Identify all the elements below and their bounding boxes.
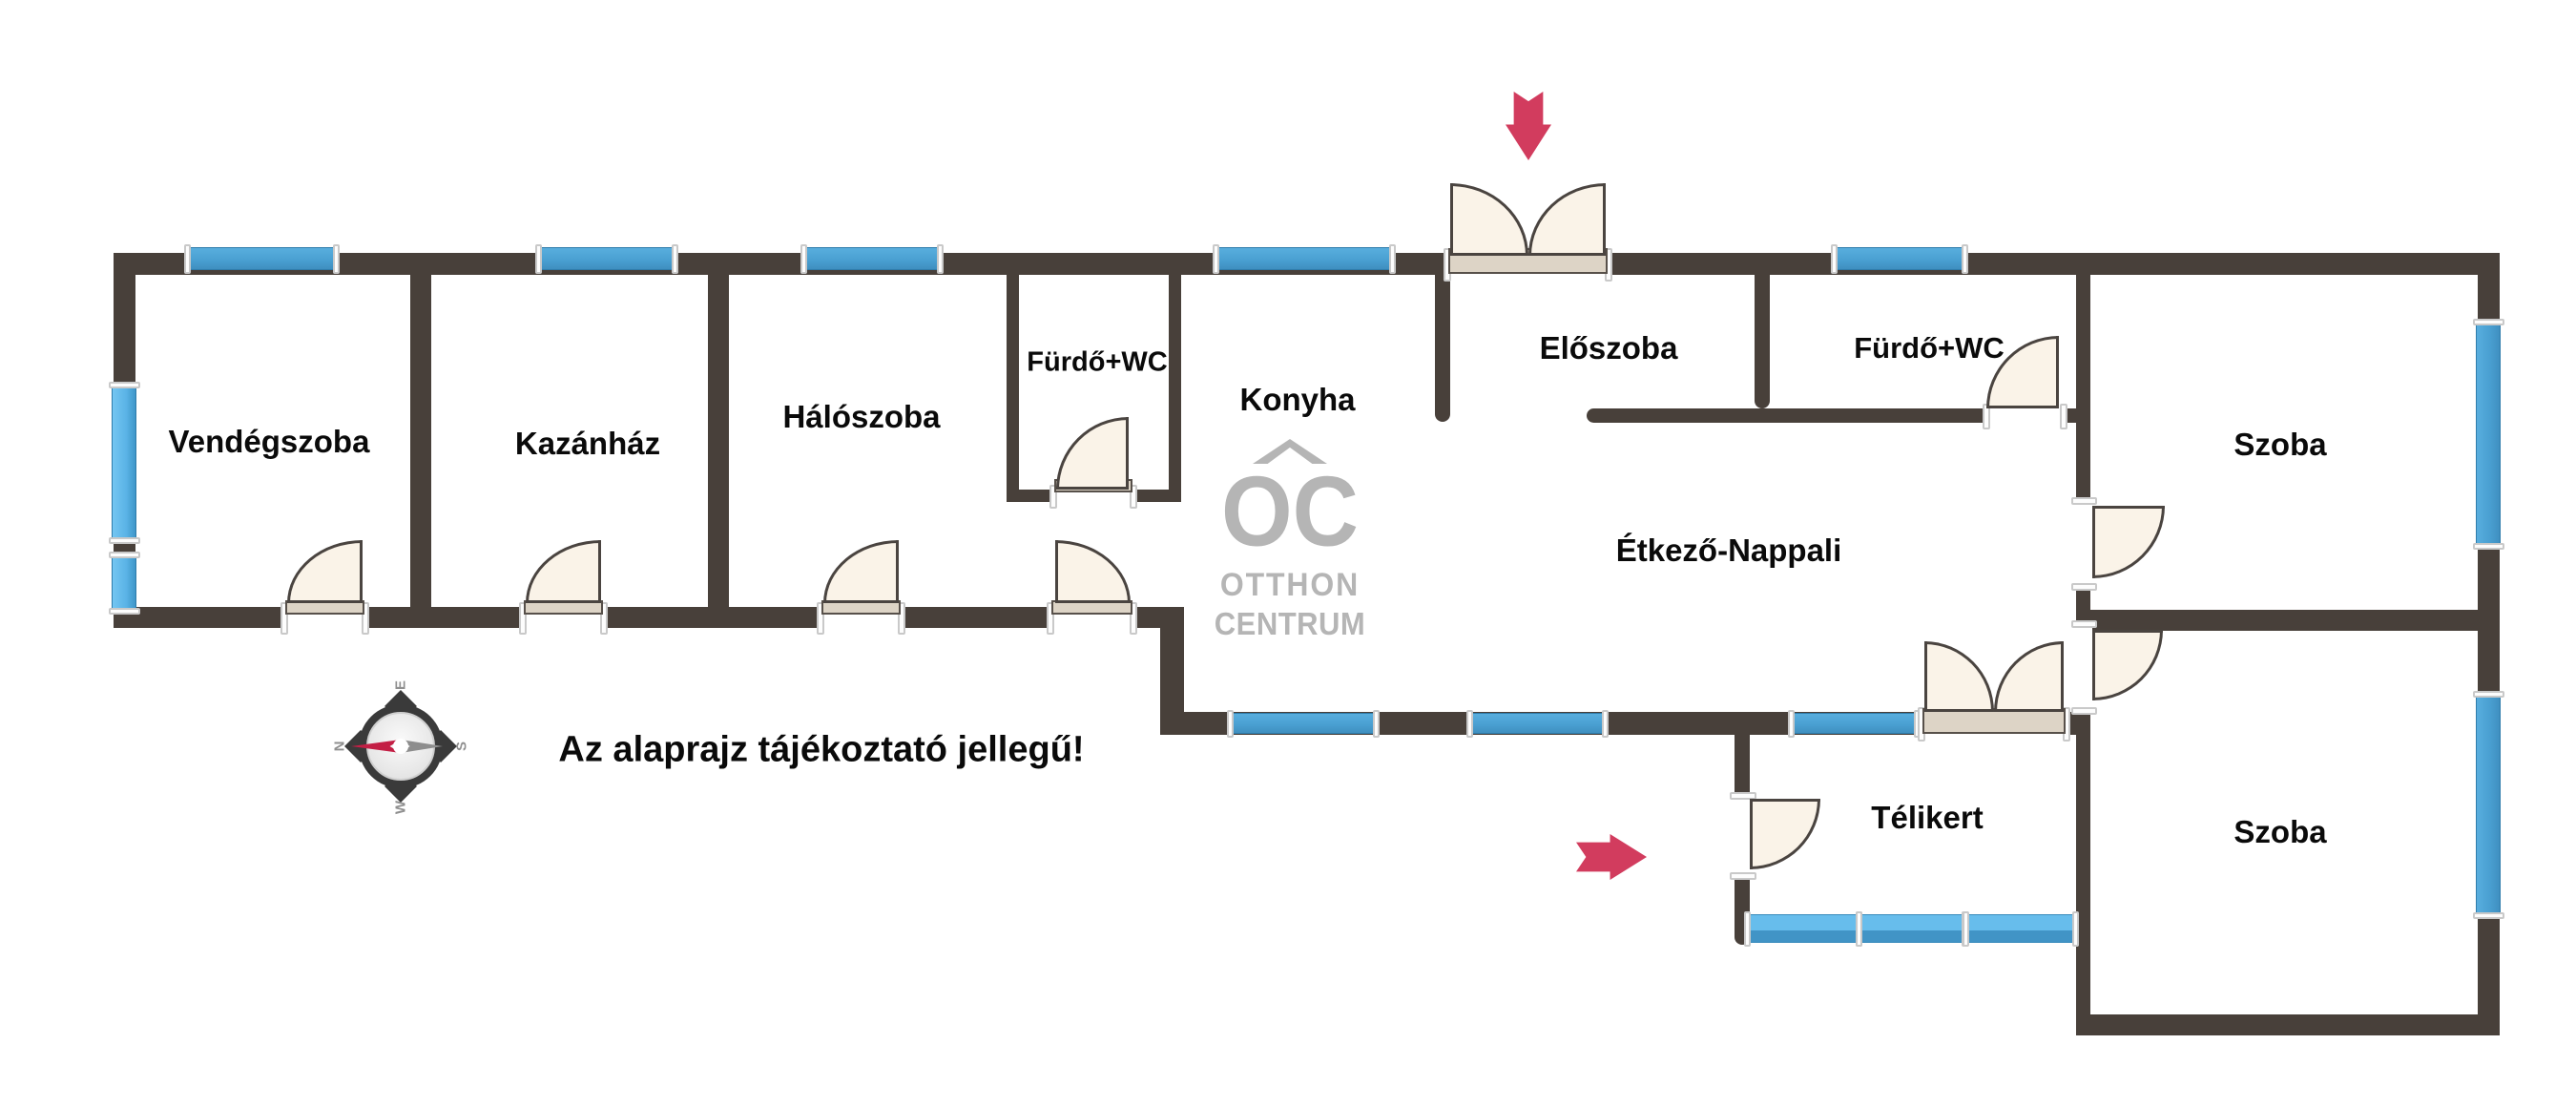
telikert-arrow: [1576, 834, 1647, 880]
konyha-top-window-cap-left: [1213, 244, 1219, 274]
szoba-felso-window-cap-top: [2473, 319, 2504, 325]
room-label-telikert: Télikert: [1871, 800, 1983, 836]
furdo1-door-swing: [1056, 417, 1129, 490]
etkezo-window-3: [1794, 713, 1915, 734]
disclaimer-text: Az alaprajz tájékoztató jellegű!: [558, 730, 1084, 771]
telikert-window-3-cap-left: [1963, 911, 1969, 947]
kazan-top-window-cap-right: [672, 244, 678, 274]
vendeg-left-window-1-cap-top: [109, 382, 140, 388]
vendeg-top-window: [190, 247, 334, 270]
szoba-felso-door-opening-jamb-top: [2071, 497, 2097, 505]
vendeg-left-window-2-cap-top: [109, 552, 140, 558]
furdo2-top-window-cap-left: [1831, 244, 1838, 274]
etkezo-window-3-cap-left: [1788, 710, 1795, 738]
room-label-szoba-also: Szoba: [2233, 814, 2326, 850]
kazan-top-window: [541, 247, 673, 270]
room-label-konyha: Konyha: [1239, 382, 1355, 418]
szoba-also-door-opening: [2074, 627, 2092, 708]
szoba-felso-door-swing: [2092, 506, 2165, 578]
telikert-window-1-cap-left: [1744, 911, 1751, 947]
szoba-also-window: [2476, 697, 2501, 913]
room-label-vendegszoba: Vendégszoba: [169, 424, 370, 460]
otthon-centrum-logo: OC OTTHON CENTRUM: [1204, 439, 1376, 642]
room-label-furdo-wc-1: Fürdő+WC: [1027, 347, 1167, 379]
compass-label-south: S: [454, 741, 470, 751]
telikert-dbl-left: [1924, 641, 1994, 712]
passage-door-swing: [1055, 540, 1131, 603]
etkezo-window-2-cap-right: [1602, 710, 1609, 738]
furdo2-door-opening-jamb-right: [2060, 404, 2067, 429]
telikert-window-2-cap-left: [1856, 911, 1862, 947]
kazan-door-swing: [526, 540, 601, 603]
szoba-also-door-opening-jamb-top: [2071, 620, 2097, 628]
szoba-also-window-cap-top: [2473, 691, 2504, 698]
compass-label-east: E: [393, 680, 409, 690]
vendeg-top-window-cap-left: [184, 244, 191, 274]
floorplan-canvas: VendégszobaKazánházHálószobaFürdő+WCKony…: [0, 0, 2576, 1107]
room-label-etkezo-nappali: Étkező-Nappali: [1616, 533, 1842, 569]
logo-name-line2: CENTRUM: [1209, 606, 1370, 642]
vendeg-left-window-2: [112, 557, 136, 609]
halo-top-window: [806, 247, 938, 270]
furdo2-left-wall: [1755, 253, 1770, 408]
furdo2-top-window-cap-right: [1962, 244, 1968, 274]
vendeg-left-window-1: [112, 387, 136, 538]
bottom-left-wall: [114, 607, 1184, 628]
etkezo-window-2: [1472, 713, 1603, 734]
etkezo-window-1-cap-right: [1373, 710, 1380, 738]
halo-door-swing: [823, 540, 899, 603]
szoba-felso-door-opening: [2074, 504, 2092, 584]
room-label-furdo-wc-2: Fürdő+WC: [1854, 331, 2005, 366]
szoba-divider-wall: [2076, 610, 2500, 631]
telikert-dbl-threshold: [1922, 708, 2066, 734]
szoba-felso-window-cap-bottom: [2473, 543, 2504, 550]
furdo1-right-wall: [1169, 253, 1181, 501]
entrance-arrow: [1506, 92, 1551, 160]
szoba-bottom-wall: [2076, 1014, 2500, 1035]
szoba-also-door-swing: [2092, 630, 2163, 700]
kazan-top-window-cap-left: [535, 244, 542, 274]
telikert-window-1: [1750, 914, 1857, 943]
furdo2-door-opening: [1989, 407, 2061, 425]
halo-top-window-cap-right: [937, 244, 944, 274]
telikert-door-swing: [1750, 799, 1820, 869]
compass-rose: E W N S: [334, 679, 467, 813]
telikert-window-2: [1861, 914, 1963, 943]
compass-label-west: W: [393, 801, 409, 814]
room-label-szoba-felso: Szoba: [2233, 427, 2326, 463]
etkezo-window-1: [1233, 713, 1374, 734]
entrance-door-right: [1528, 183, 1606, 256]
room-label-kazanhaz: Kazánház: [515, 426, 660, 462]
compass-label-north: N: [332, 741, 348, 752]
etkezo-window-2-cap-left: [1466, 710, 1473, 738]
furdo1-left-wall: [1007, 253, 1019, 501]
logo-monogram: OC: [1204, 464, 1376, 561]
divider-vendeg-kazan: [410, 253, 431, 628]
entrance-door-left: [1450, 183, 1528, 256]
etkezo-window-1-cap-left: [1227, 710, 1234, 738]
vendeg-left-window-2-cap-bottom: [109, 608, 140, 615]
telikert-dbl-right: [1994, 641, 2064, 712]
szoba-felso-door-opening-jamb-bottom: [2071, 583, 2097, 591]
szoba-also-window-cap-bottom: [2473, 912, 2504, 919]
konyha-top-window: [1218, 247, 1390, 270]
logo-name-line1: OTTHON: [1209, 567, 1370, 604]
konyha-top-window-cap-right: [1389, 244, 1396, 274]
telikert-door-opening: [1733, 799, 1752, 873]
szoba-also-door-opening-jamb-bottom: [2071, 707, 2097, 715]
compass-center-dot: [393, 739, 408, 754]
telikert-window-3-cap-right: [2072, 911, 2079, 947]
vendeg-door-swing: [287, 540, 363, 603]
telikert-window-3: [1968, 914, 2073, 943]
telikert-door-opening-jamb-bottom: [1730, 872, 1756, 880]
furdo2-top-window: [1837, 247, 1963, 270]
szoba-felso-window: [2476, 324, 2501, 544]
vendeg-top-window-cap-right: [333, 244, 340, 274]
room-label-eloszoba: Előszoba: [1540, 330, 1678, 366]
divider-kazan-halo: [708, 253, 729, 628]
vendeg-left-window-1-cap-bottom: [109, 537, 140, 544]
halo-top-window-cap-left: [800, 244, 807, 274]
room-label-haloszoba: Hálószoba: [782, 399, 940, 435]
